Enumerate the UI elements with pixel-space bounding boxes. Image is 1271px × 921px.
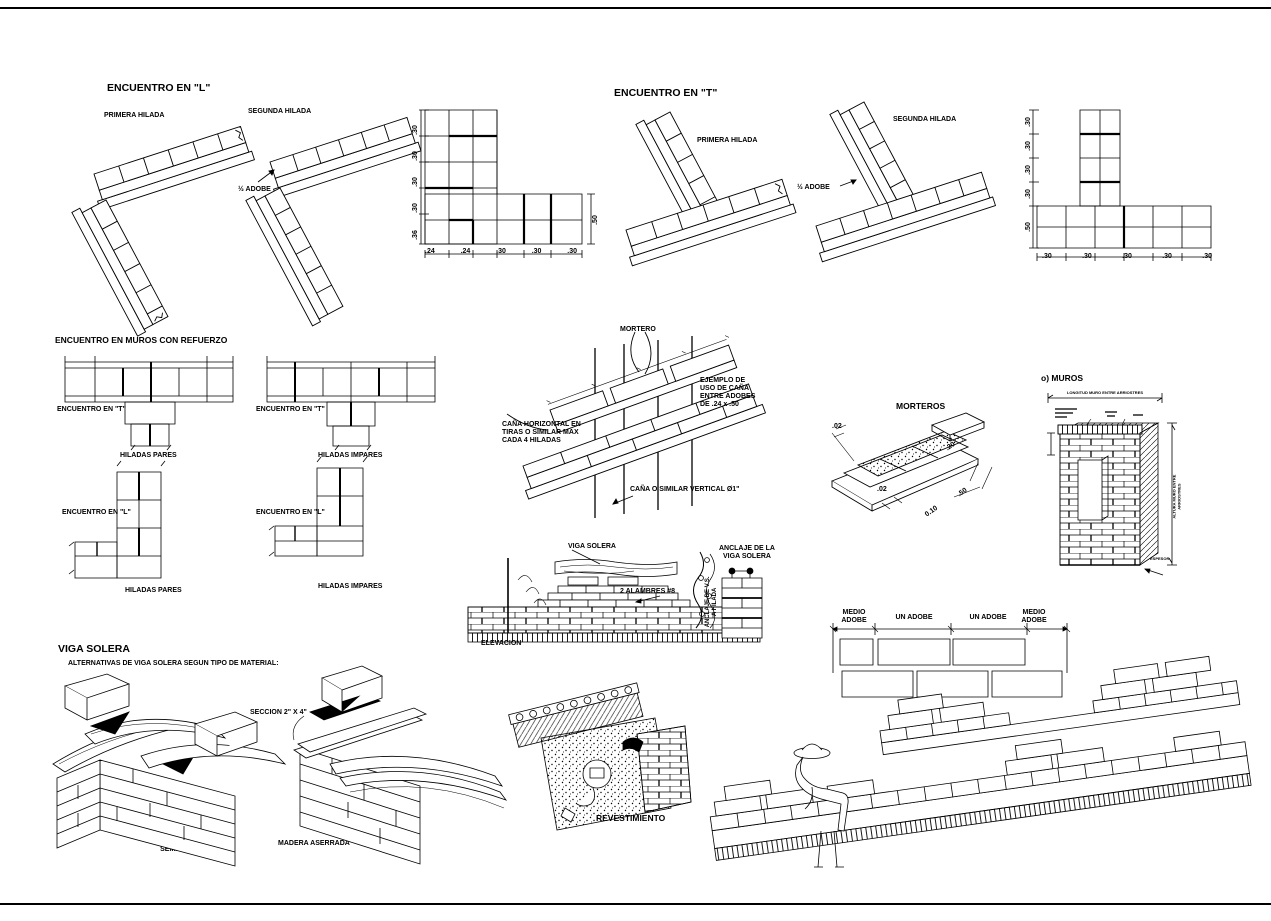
muros-dim-top-label: LONGITUD MURO ENTRE ARRIOSTRES bbox=[1048, 391, 1162, 396]
aparejo-label-2: UN ADOBE bbox=[890, 614, 938, 622]
t-impares-sub: HILADAS IMPARES bbox=[318, 452, 382, 460]
revestimiento-title: REVESTIMIENTO bbox=[596, 814, 665, 824]
sheet-border-bottom bbox=[0, 903, 1271, 905]
mortero-label: MORTERO bbox=[620, 326, 656, 334]
elevacion-label: ELEVACION bbox=[481, 640, 521, 648]
muros-title: o) MUROS bbox=[1041, 374, 1083, 384]
alambres-label: 2 ALAMBRES #8 bbox=[620, 588, 678, 596]
plan-t-dim-left-1: .30 bbox=[1025, 111, 1033, 133]
encuentro-t-plan bbox=[1025, 95, 1225, 270]
t-impares-plan bbox=[267, 356, 435, 450]
cana-horizontal-label: CAÑA HORIZONTAL EN TIRAS O SIMILAR MAX C… bbox=[502, 421, 590, 445]
encuentro-l-title: ENCUENTRO EN "L" bbox=[107, 82, 210, 94]
t-pares-sub: HILADAS PARES bbox=[120, 452, 177, 460]
l-pares-label: ENCUENTRO EN "L" bbox=[62, 509, 131, 517]
aparejo-label-1: MEDIO ADOBE bbox=[838, 609, 870, 625]
morteros-dim-left: .02 bbox=[832, 423, 842, 431]
muros-dim-right-label: ALTURA MURO ENTRE ARRIOSTRES bbox=[1172, 465, 1181, 529]
plan-t-dim-left-2: .30 bbox=[1025, 135, 1033, 157]
plan-t-dim-left-5: .50 bbox=[1025, 216, 1033, 238]
sheet-border-top bbox=[0, 7, 1271, 9]
muros-refuerzo-title: ENCUENTRO EN MUROS CON REFUERZO bbox=[55, 336, 227, 346]
morteros-title: MORTEROS bbox=[896, 402, 945, 412]
madera-rustica-iso bbox=[53, 674, 285, 866]
encuentro-l-segunda-iso bbox=[252, 100, 417, 300]
encuentro-t-segunda-iso bbox=[800, 92, 1000, 292]
anclaje-title-label: ANCLAJE DE LA VIGA SOLERA bbox=[718, 545, 776, 561]
plan-t-dim-left-3: .30 bbox=[1025, 159, 1033, 181]
plan-l-dim-right: .50 bbox=[592, 209, 600, 231]
viga-alternativas-subtitle: ALTERNATIVAS DE VIGA SOLERA SEGUN TIPO D… bbox=[68, 660, 279, 668]
encuentro-l-primera-iso bbox=[80, 108, 260, 298]
l-impares-sub: HILADAS IMPARES bbox=[318, 583, 382, 591]
plan-l-dims-bottom: .24 .24 .30 .30 .30 bbox=[425, 248, 577, 255]
l-impares-plan bbox=[269, 457, 367, 556]
anclaje-lateral-label: ANCLAJE DE V.S. A HILADA bbox=[705, 573, 719, 631]
madera-aserrada-iso bbox=[293, 666, 506, 864]
cana-vertical-label: CAÑA O SIMILAR VERTICAL Ø1" bbox=[630, 486, 740, 494]
muros-wall-drawing bbox=[1025, 385, 1250, 580]
drawing-sheet: ENCUENTRO EN "L" PRIMERA HILADA SEGUNDA … bbox=[0, 0, 1271, 921]
viga-solera-label: VIGA SOLERA bbox=[568, 543, 616, 551]
cana-ejemplo-label: EJEMPLO DE USO DE CAÑA ENTRE ADOBES DE .… bbox=[700, 377, 764, 409]
aparejo-label-4: MEDIO ADOBE bbox=[1018, 609, 1050, 625]
viga-alternativas-title: VIGA SOLERA bbox=[58, 643, 130, 655]
l-pares-sub: HILADAS PARES bbox=[125, 587, 182, 595]
l-pares-plan bbox=[69, 461, 165, 578]
t-pares-label: ENCUENTRO EN "T" bbox=[57, 406, 126, 414]
plan-t-dim-left-4: .30 bbox=[1025, 183, 1033, 205]
plan-l-dim-left-2: .30 bbox=[412, 145, 420, 167]
aparejo-label-3: UN ADOBE bbox=[964, 614, 1012, 622]
muros-refuerzo-drawing bbox=[55, 350, 440, 595]
t-pares-plan bbox=[65, 356, 233, 450]
plan-l-dim-left-5: .36 bbox=[412, 224, 420, 246]
l-impares-label: ENCUENTRO EN "L" bbox=[256, 509, 325, 517]
plan-l-dim-left-4: .30 bbox=[412, 197, 420, 219]
t-impares-label: ENCUENTRO EN "T" bbox=[256, 406, 325, 414]
plan-l-dim-left-3: .30 bbox=[412, 171, 420, 193]
encuentro-t-primera-iso bbox=[612, 98, 802, 293]
plan-t-dims-bottom: .30 .30 .30 .30 .30 bbox=[1042, 253, 1212, 260]
plan-l-dim-left-1: .30 bbox=[412, 119, 420, 141]
viga-alternativas-drawing bbox=[45, 668, 465, 880]
muros-bottom-label: ESPESOR bbox=[1150, 557, 1169, 562]
morteros-dim-bottom: .02 bbox=[877, 486, 887, 494]
mason-iso-drawing bbox=[700, 695, 1265, 900]
